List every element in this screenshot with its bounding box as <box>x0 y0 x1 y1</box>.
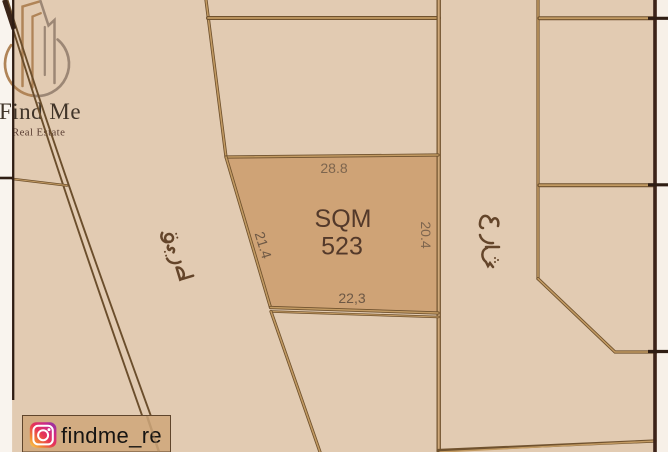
svg-text:findme_re: findme_re <box>61 423 162 448</box>
svg-text:523: 523 <box>321 233 363 261</box>
svg-text:28.8: 28.8 <box>320 160 347 176</box>
svg-text:22,3: 22,3 <box>338 290 365 306</box>
svg-text:20.4: 20.4 <box>418 221 434 248</box>
svg-text:Real Estate: Real Estate <box>12 127 65 139</box>
svg-text:SQM: SQM <box>315 205 372 233</box>
